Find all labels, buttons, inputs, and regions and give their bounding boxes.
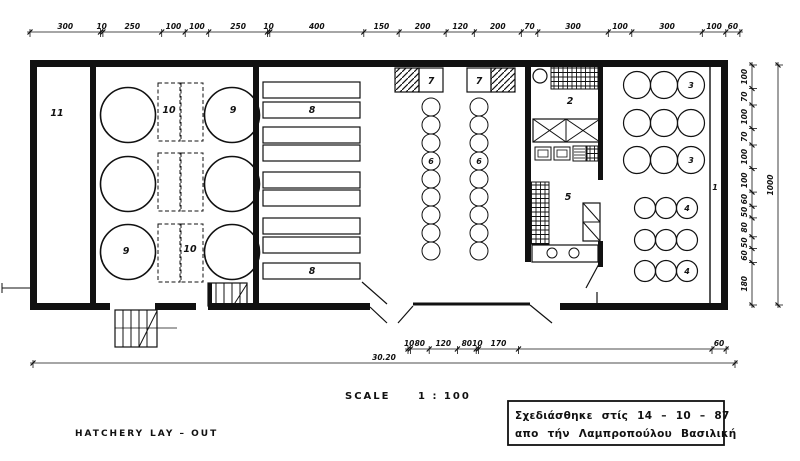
large-tank-circle [101,157,156,212]
dimension-label: 170 [491,339,507,348]
incubator-jar-circle [422,242,440,260]
dimension-label: 120 [435,339,451,348]
appliance-striped [573,146,586,161]
room2-basin-circle [533,69,547,83]
incubator-area: 7 7 6 6 [395,68,515,260]
trough-bar [263,127,360,143]
dimension-label: 100 [740,172,749,188]
appliance-box-inner [557,150,567,157]
room-2-label: 2 [567,96,574,107]
appliance-hatched [587,146,598,161]
trough-bar [263,145,360,161]
porch-splay-right [530,305,552,323]
pool3-circle [624,72,651,99]
dimension-label: 10 [96,22,106,31]
incubator-jar-circle [470,170,488,188]
rack-top-label: 10 [162,105,176,116]
dimension-label: 10 [472,339,482,348]
stair-outline [115,310,157,347]
plan-svg: 3001025010010025010400150200120200703001… [0,0,800,461]
entrance [362,282,552,323]
dimension-label: 100 [189,22,205,31]
tray-left-label: 7 [428,76,435,87]
pool3-circle [651,72,678,99]
dimension-label: 100 [740,149,749,165]
stairs [2,283,247,347]
incubator-jar-circle [422,224,440,242]
dimension-label: 120 [452,22,468,31]
dimension-label: 80 [462,339,472,348]
dimension-label: 60 [714,339,724,348]
large-tank-circle [205,225,260,280]
top-dimension-chain: 3001025010010025010400150200120200703001… [27,22,743,37]
appliance-box [535,147,551,160]
incubator-jar-circle [422,98,440,116]
exterior-stair [115,310,177,347]
jar-left-label: 6 [428,157,434,166]
trough-bottom-label: 8 [309,266,316,277]
stair-diagonal [139,311,157,347]
vestibule-diagonal [362,282,387,304]
pool3-bottom-label: 3 [688,156,694,165]
pool3-circle [624,147,651,174]
trough-bar [263,237,360,253]
wall-bottom-d [560,303,728,310]
incubator-jar-circle [470,98,488,116]
pool3-top-label: 3 [688,81,694,90]
appliance-box-inner [538,150,548,157]
dimension-label: 100 [612,22,628,31]
dimension-label: 60 [728,22,738,31]
drawing-title-right: LAY – OUT [150,429,218,439]
bottom-dimension-chain: 1080120801017060 [404,339,729,354]
rack-bottom-label: 10 [183,244,197,255]
dimension-label: 250 [230,22,246,31]
dimension-label: 300 [57,22,73,31]
dimension-label: 60 [740,194,749,204]
dimension-label: 150 [374,22,390,31]
striped-box [573,146,586,161]
bottom-overall-dimension: 30.20 [30,353,738,368]
trough-bar [263,218,360,234]
dimension-label: 100 [166,22,182,31]
dimension-label: 10 [263,22,273,31]
dimension-label: 200 [415,22,431,31]
incubator-jar-circle [422,134,440,152]
dimension-label: 300 [659,22,675,31]
porch-splay-left [370,307,387,323]
wall-room2-west [525,66,531,262]
pool4-circle [656,198,677,219]
room-5: 5 [531,182,600,303]
trough-bar [263,82,360,98]
dimension-label: 80 [740,222,749,232]
pool3-circle [678,110,705,137]
bench-sink-circle [547,248,557,258]
rack-dashed [181,83,203,141]
wall-bottom-a [30,303,110,310]
dimension-label: 50 [740,207,749,217]
trough-area: 8 8 [263,82,360,279]
pool4-bottom-label: 4 [683,267,690,276]
wall-top [30,60,728,67]
drawing-title-left: HATCHERY [75,429,144,439]
dimension-label: 100 [740,69,749,85]
room5-hatched-column [531,182,549,244]
note-line-2: απο τήν Λαμπροπούλου Βασιλική [515,428,737,440]
wall-room11-east [90,66,96,303]
pool4-circle [656,261,677,282]
pool3-circle [651,110,678,137]
jar-right-label: 6 [476,157,482,166]
rack-dashed [158,153,180,211]
note-line-1: Σχεδιάσθηκε στίς 14 – 10 – 87 [515,410,730,422]
pool3-circle [624,110,651,137]
rack-dashed [158,224,180,282]
room-2: 2 [533,66,600,161]
room2-bench-hatched [551,66,598,89]
incubator-jar-circle [470,188,488,206]
pool4-circle [635,230,656,251]
incubator-jar-circle [470,116,488,134]
trough-bar [263,190,360,206]
trough-top-label: 8 [309,105,316,116]
incubator-jar-circle [470,224,488,242]
dimension-label: 10 [404,339,414,348]
dimension-label: 30.20 [372,353,396,362]
right-dimension-chain: 10070100701001006050805060180 [740,62,757,308]
scale-label: SCALE [345,391,390,402]
incubator-jar-circle [470,206,488,224]
tank-bottom-left-label: 9 [123,246,130,257]
rack-dashed [181,153,203,211]
room5-door-leaf [586,262,600,288]
room-11-label: 11 [50,108,63,119]
dimension-label: 70 [524,22,534,31]
dimension-label: 250 [124,22,140,31]
dimension-label: 100 [706,22,722,31]
dimension-label: 70 [740,92,749,102]
pool4-circle [635,198,656,219]
wall-bottom-b [155,303,196,310]
interior-stair [208,283,247,306]
pool3-circle [651,147,678,174]
channel-label: 1 [712,183,718,192]
pool4-circle [656,230,677,251]
dimension-label: 60 [740,250,749,260]
tray-right-label: 7 [476,76,483,87]
bench-sink-circle [569,248,579,258]
dimension-label: 70 [740,132,749,142]
dimension-label: 400 [309,22,325,31]
stair-diagonal [583,203,600,222]
dimension-label: 100 [740,109,749,125]
room5-bench [532,245,598,262]
dimension-label: 300 [565,22,581,31]
tank-room: 10 10 9 9 [101,83,260,282]
hatched-tray [491,68,515,92]
dimension-label: 50 [740,237,749,247]
hatched-tray [395,68,419,92]
tank-top-right-label: 9 [230,105,237,116]
pool4-circle [635,261,656,282]
incubator-jar-circle [422,188,440,206]
large-tank-circle [205,157,260,212]
incubator-jar-circle [422,116,440,134]
pool4-top-label: 4 [683,204,690,213]
dimension-label: 1000 [766,175,775,196]
dimension-label: 180 [740,276,749,292]
incubator-jar-circle [422,170,440,188]
note-box: Σχεδιάσθηκε στίς 14 – 10 – 87 απο τήν Λα… [508,401,737,445]
wall-west [30,60,37,305]
appliance-box [554,147,570,160]
wall-east [721,60,728,310]
dimension-label: 200 [490,22,506,31]
room-5-label: 5 [565,192,572,203]
stair-edge [208,283,212,306]
stair-diagonal [583,222,600,241]
large-tank-circle [101,88,156,143]
room-11: 11 [50,108,63,119]
right-overall-dimension: 1000 [766,62,783,308]
dimension-label: 80 [415,339,425,348]
annotations: SCALE 1 : 100 HATCHERY LAY – OUT Σχεδιάσ… [75,391,737,445]
walls [30,60,728,310]
stair-outline [208,283,247,306]
incubator-jar-circle [422,206,440,224]
porch-splay-inner-left [398,306,413,323]
scale-value: 1 : 100 [418,391,471,402]
pool-area: 3 3 4 4 1 [624,72,718,282]
trough-bar [263,172,360,188]
pool4-circle [677,230,698,251]
incubator-jar-circle [470,242,488,260]
incubator-jar-circle [470,134,488,152]
